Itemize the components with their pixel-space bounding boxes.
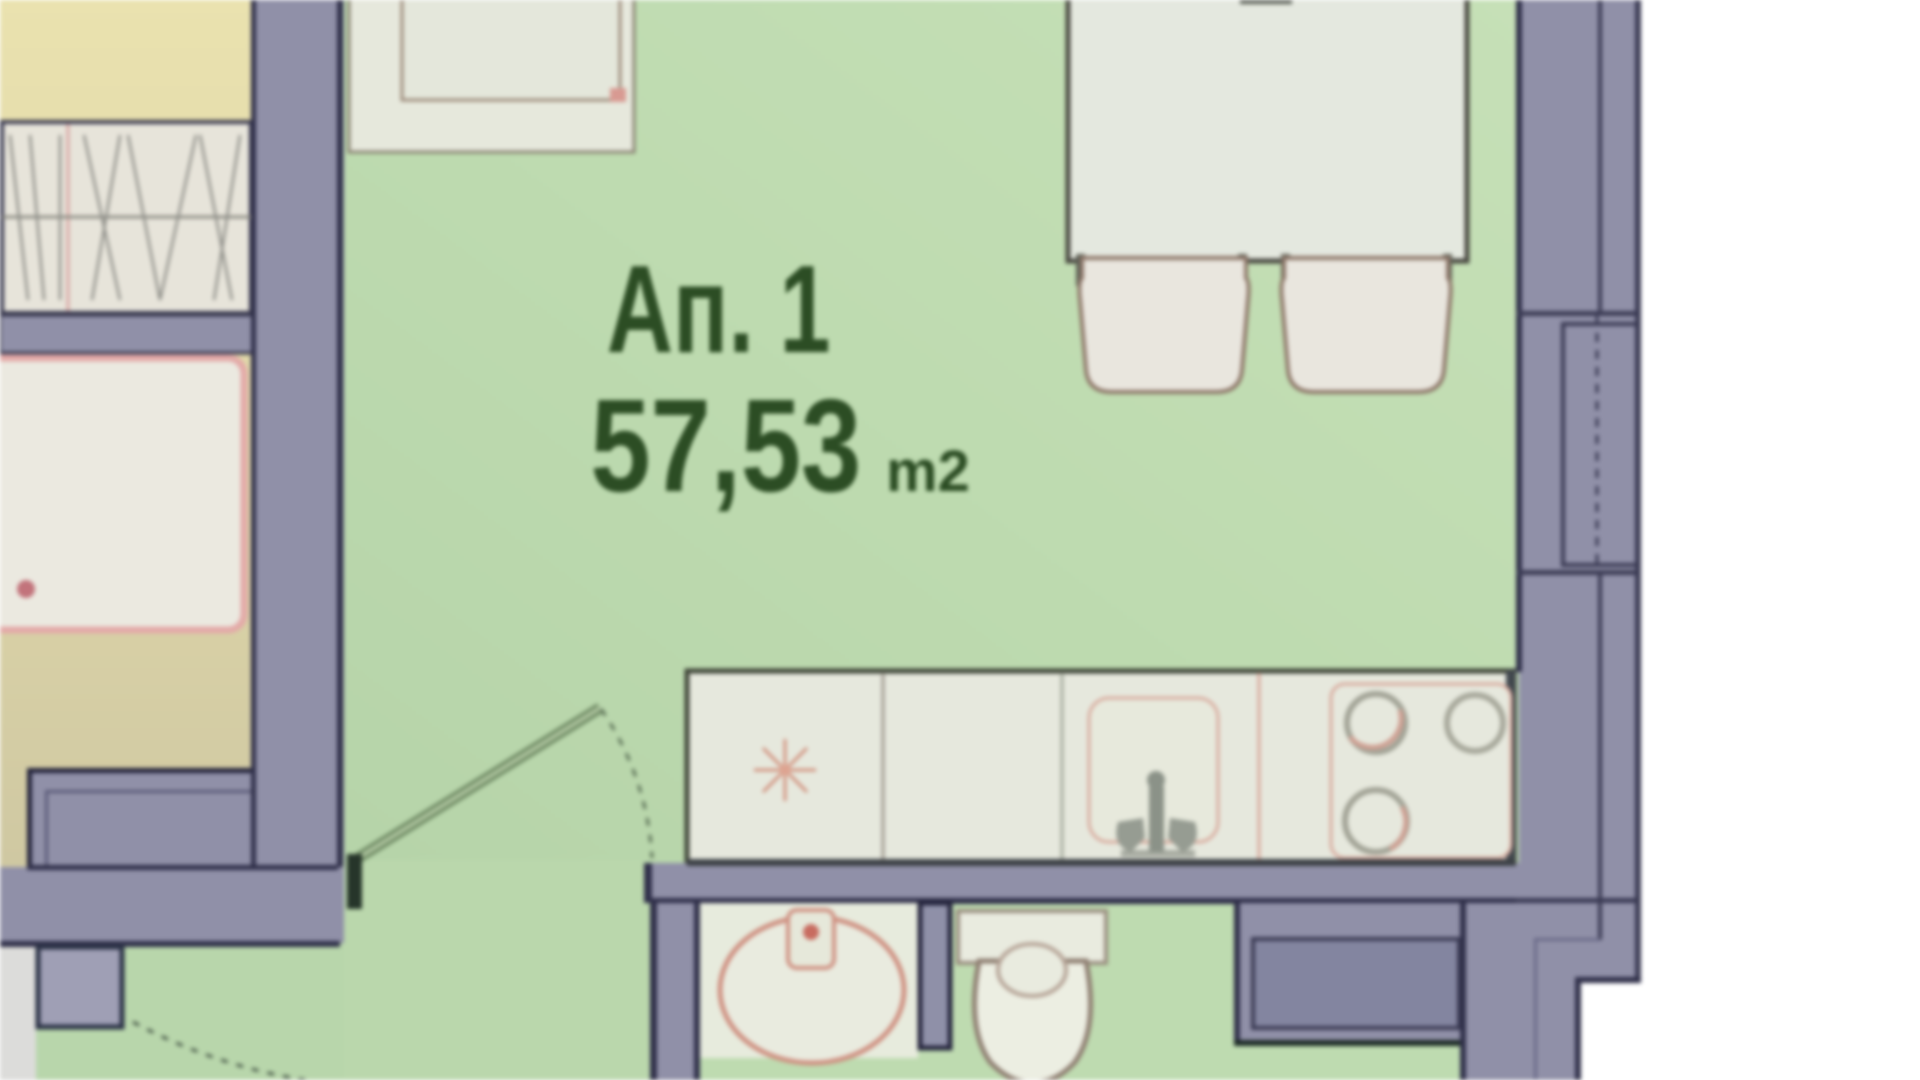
svg-text:Ап. 1: Ап. 1	[607, 241, 831, 380]
svg-text:m2: m2	[886, 439, 970, 504]
svg-text:57,53: 57,53	[590, 372, 861, 520]
